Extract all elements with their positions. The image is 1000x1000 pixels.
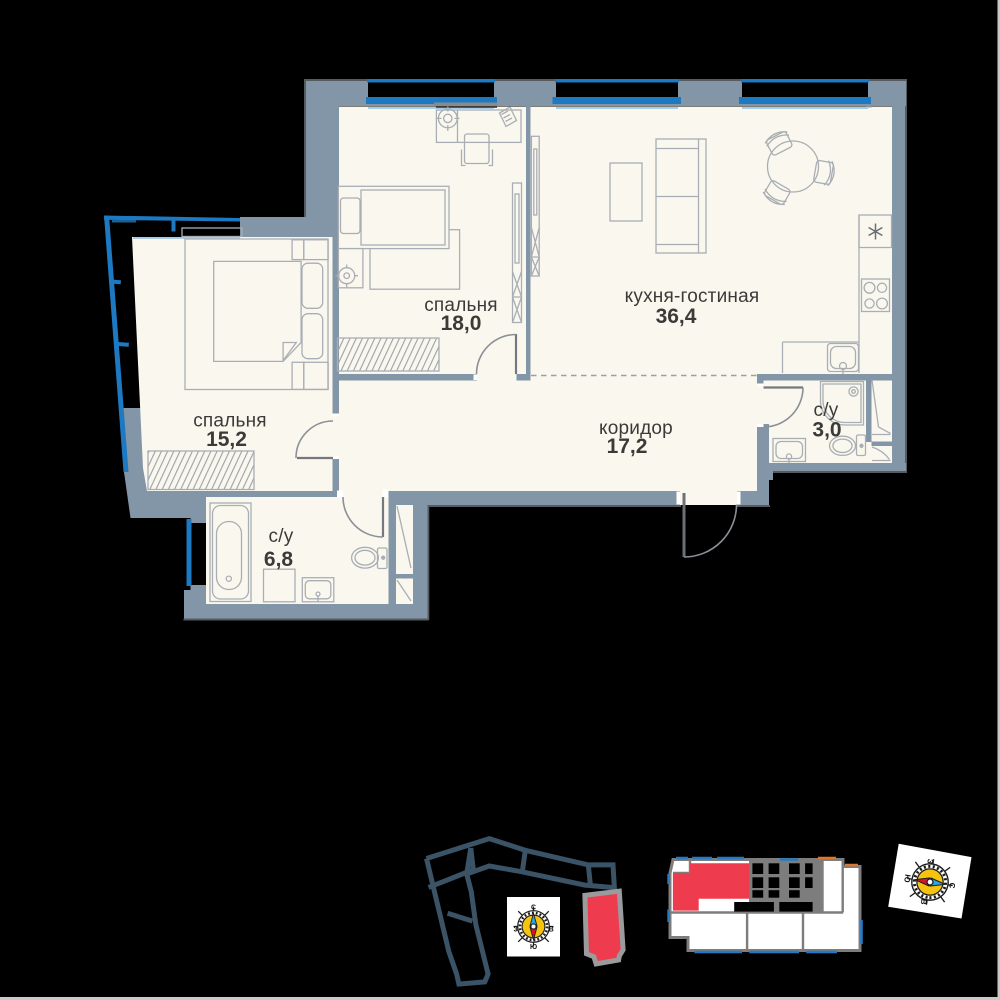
- svg-text:кухня-гостиная: кухня-гостиная: [625, 286, 760, 307]
- svg-text:15,2: 15,2: [206, 428, 247, 451]
- svg-text:17,2: 17,2: [607, 435, 648, 458]
- svg-text:6,8: 6,8: [264, 548, 294, 571]
- svg-text:3,0: 3,0: [812, 419, 841, 442]
- svg-text:с/у: с/у: [269, 526, 294, 547]
- svg-text:18,0: 18,0: [441, 312, 482, 335]
- svg-text:36,4: 36,4: [656, 305, 697, 328]
